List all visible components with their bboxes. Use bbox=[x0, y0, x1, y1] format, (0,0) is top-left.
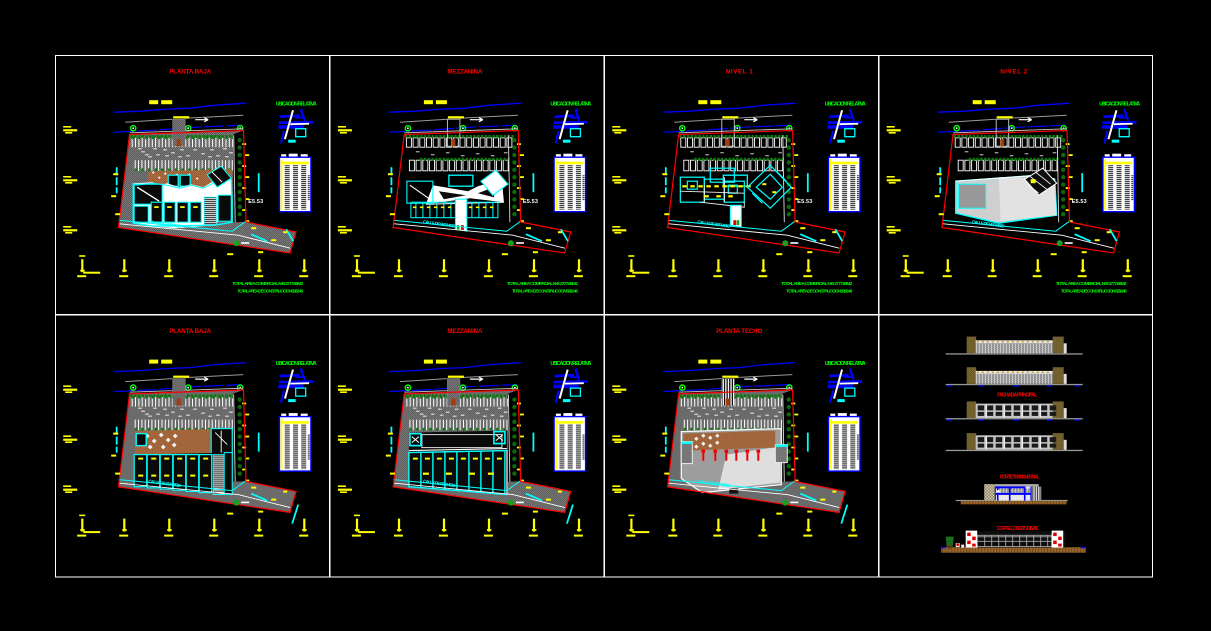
svg-text:E5.53: E5.53 bbox=[797, 199, 812, 205]
svg-text:TOTAL AREA COMERCIAL N-B 2777.: TOTAL AREA COMERCIAL N-B 2777.56M2 bbox=[507, 281, 578, 287]
svg-text:UBICACION RELATIVA: UBICACION RELATIVA bbox=[276, 102, 317, 108]
svg-text:UBICACION RELATIVA: UBICACION RELATIVA bbox=[825, 102, 866, 108]
svg-text:E5.53: E5.53 bbox=[523, 199, 538, 205]
svg-text:TOTAL AREA COMERCIAL N-B 2777.: TOTAL AREA COMERCIAL N-B 2777.56M2 bbox=[1056, 281, 1127, 287]
svg-text:E5.53: E5.53 bbox=[248, 199, 263, 205]
svg-text:UBICACION RELATIVA: UBICACION RELATIVA bbox=[550, 361, 591, 367]
svg-text:TOTAL AREA DE CONSTRUCCION 528: TOTAL AREA DE CONSTRUCCION 5282.48 bbox=[786, 289, 852, 295]
svg-text:PLANTA BAJA: PLANTA BAJA bbox=[169, 328, 212, 335]
svg-text:UBICACION RELATIVA: UBICACION RELATIVA bbox=[550, 102, 591, 108]
svg-text:TOTAL AREA COMERCIAL N-B 2777.: TOTAL AREA COMERCIAL N-B 2777.56M2 bbox=[232, 281, 303, 287]
svg-text:MEZZANINA: MEZZANINA bbox=[447, 68, 483, 75]
svg-text:NIVEL 2: NIVEL 2 bbox=[1000, 68, 1028, 75]
svg-text:CORTE TRANSVERSAL: CORTE TRANSVERSAL bbox=[1000, 475, 1040, 481]
svg-text:UBICACION RELATIVA: UBICACION RELATIVA bbox=[825, 361, 866, 367]
svg-text:MEZZANINA: MEZZANINA bbox=[447, 328, 483, 335]
svg-text:NIVEL 1: NIVEL 1 bbox=[726, 68, 754, 75]
svg-text:PLANTA TECHO: PLANTA TECHO bbox=[716, 328, 762, 335]
svg-text:PLANTA BAJA: PLANTA BAJA bbox=[169, 68, 212, 75]
svg-text:TOTAL AREA DE CONSTRUCCION 528: TOTAL AREA DE CONSTRUCCION 5282.48 bbox=[512, 289, 578, 295]
svg-text:E5.53: E5.53 bbox=[1072, 199, 1087, 205]
svg-text:FACHADA PRINCIPAL: FACHADA PRINCIPAL bbox=[997, 393, 1037, 399]
svg-text:UBICACION RELATIVA: UBICACION RELATIVA bbox=[1099, 102, 1140, 108]
svg-text:UBICACION RELATIVA: UBICACION RELATIVA bbox=[276, 361, 317, 367]
svg-text:TOTAL AREA DE CONSTRUCCION 528: TOTAL AREA DE CONSTRUCCION 5282.48 bbox=[237, 289, 303, 295]
svg-text:TOTAL AREA DE CONSTRUCCION 528: TOTAL AREA DE CONSTRUCCION 5282.48 bbox=[1061, 289, 1127, 295]
svg-text:TOTAL AREA COMERCIAL N-B 2777.: TOTAL AREA COMERCIAL N-B 2777.56M2 bbox=[781, 281, 852, 287]
